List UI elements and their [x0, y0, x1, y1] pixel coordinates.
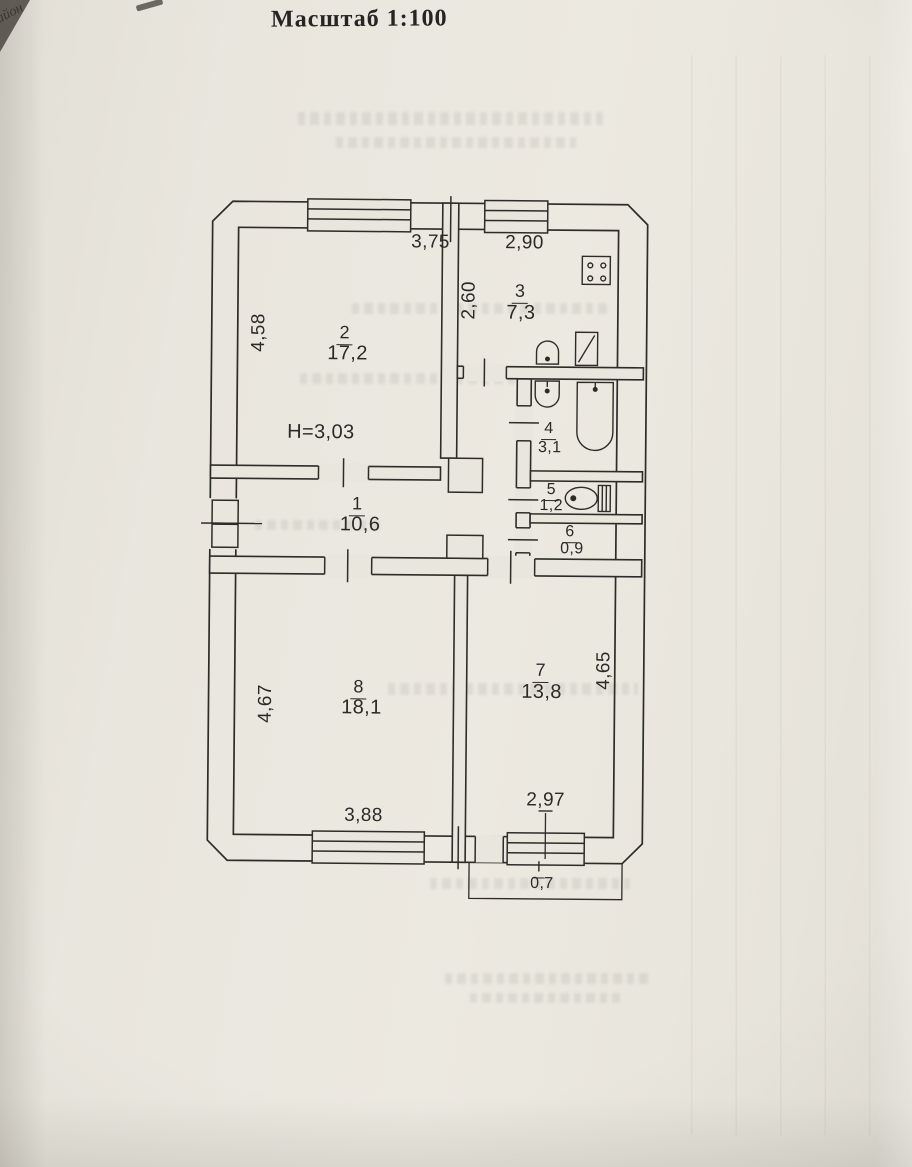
- vent-shaft-block: [448, 458, 482, 492]
- scanned-floor-plan-page: айон Масштаб 1:100: [0, 0, 912, 1167]
- room-2-area: 17,2: [327, 343, 368, 363]
- window-room2: [308, 199, 411, 232]
- balcony-area: 0,7: [530, 876, 554, 892]
- wall-wc-closet: [530, 514, 642, 524]
- ceiling-height-note: H=3,03: [287, 422, 355, 443]
- toilet-icon: [565, 485, 610, 511]
- vent-shaft-block: [447, 535, 483, 558]
- room-5-number: 5: [544, 482, 559, 498]
- room-7-number: 7: [532, 661, 549, 679]
- stove-icon: [582, 256, 610, 284]
- room-7-area: 13,8: [521, 682, 562, 702]
- room-8-number: 8: [350, 677, 367, 695]
- dim-kitchen-depth: 2,60: [459, 281, 478, 320]
- window-room8: [312, 831, 424, 864]
- bathtub-icon: [577, 382, 614, 450]
- room-1-number: 1: [349, 494, 366, 512]
- floor-plan: 3,75 2,90 2,60 4,58 4,67 4,65 3,88 2,97 …: [0, 0, 912, 1167]
- sink-unit-icon: [575, 332, 597, 365]
- washbasin-icon: [535, 381, 559, 407]
- room-8-area: 18,1: [341, 697, 382, 717]
- wall-corridor-lower-rooms: [210, 556, 642, 577]
- room-2-number: 2: [336, 323, 353, 341]
- balcony-number: I: [534, 859, 545, 874]
- floor-plan-drawing: [0, 0, 912, 1167]
- room-6-area: 0,9: [560, 541, 584, 557]
- room-3-area: 7,3: [506, 303, 535, 323]
- interior-walls: [207, 201, 645, 864]
- window-kitchen: [485, 200, 548, 233]
- room-3-number: 3: [512, 282, 529, 300]
- room-5-area: 1,2: [539, 498, 563, 514]
- room-1-area: 10,6: [340, 514, 381, 534]
- room-4-area: 3,1: [538, 440, 562, 456]
- wall-room8-room7: [452, 575, 468, 862]
- dim-room2-depth: 4,58: [249, 313, 268, 352]
- dim-room2-width: 3,75: [411, 232, 450, 251]
- room-6-number: 6: [562, 524, 577, 540]
- dim-kitchen-width: 2,90: [505, 233, 544, 252]
- kitchen-sink-icon: [536, 341, 558, 364]
- dim-room7-width: 2,97: [526, 790, 565, 809]
- room-4-number: 4: [541, 421, 556, 437]
- vent-shafts: [447, 458, 484, 558]
- dim-room8-width: 3,88: [344, 806, 383, 825]
- dim-room7-depth: 4,65: [594, 651, 613, 690]
- balcony-door: [475, 835, 503, 862]
- exterior-walls: [207, 201, 648, 864]
- dim-room8-depth: 4,67: [256, 684, 275, 723]
